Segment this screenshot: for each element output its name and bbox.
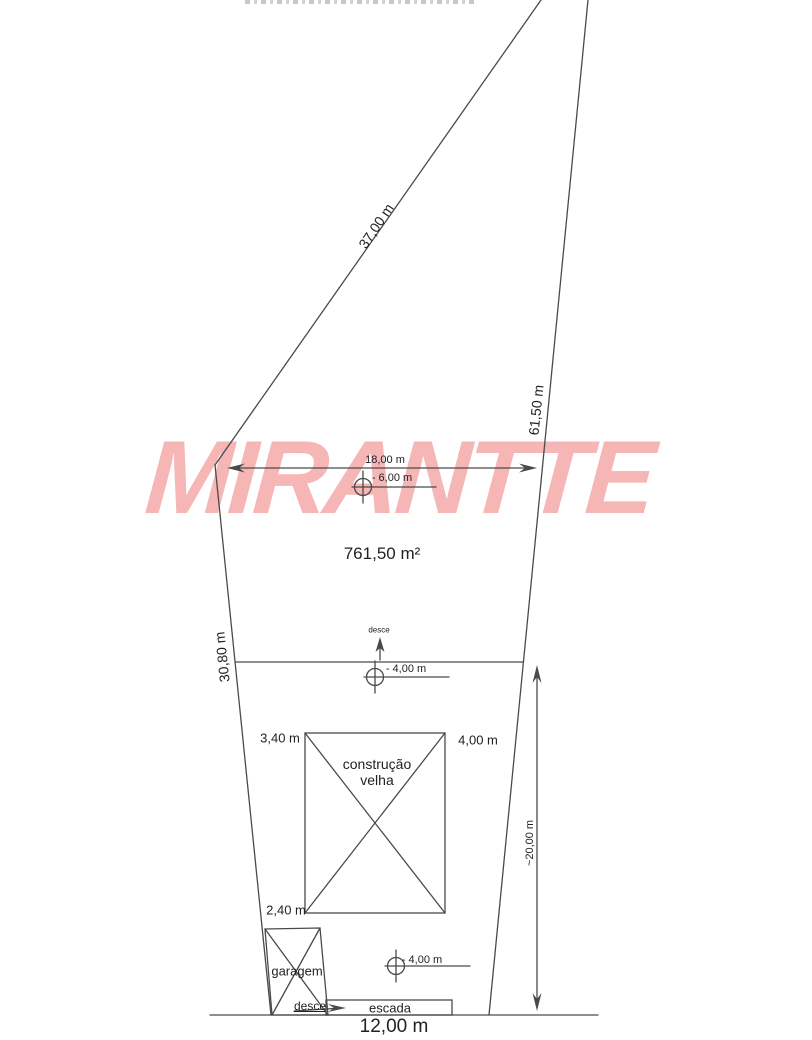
dimension-label-20m: ~20,00 m	[524, 820, 536, 866]
dimension-label-2-40m: 2,40 m	[266, 903, 306, 918]
old-construction-label-line1: construção	[343, 756, 411, 772]
dimension-label-4-00m: 4,00 m	[458, 733, 498, 748]
level-label-minus-4m-mid: - 4,00 m	[386, 663, 426, 675]
boundary-right-line	[489, 0, 588, 1015]
garage-label: garagem	[271, 964, 322, 979]
lot-area-label: 761,50 m²	[344, 544, 421, 564]
dimension-label-18m: 18,00 m	[365, 454, 405, 466]
site-plan-drawing: MIRANTTE	[0, 0, 812, 1040]
dimension-label-3-40m: 3,40 m	[260, 731, 300, 746]
stairs-label: escada	[369, 1001, 411, 1016]
desce-label-upper: desce	[368, 626, 389, 635]
desce-label-lower: desce	[294, 999, 326, 1013]
level-label-minus-6m: - 6,00 m	[372, 472, 412, 484]
dimension-label-12m: 12,00 m	[360, 1016, 429, 1038]
old-construction-label-line2: velha	[343, 772, 411, 788]
level-label-minus-4m-lower: - 4,00 m	[402, 954, 442, 966]
desce-up-arrow	[376, 637, 385, 660]
plan-linework	[0, 0, 812, 1040]
old-construction-label: construção velha	[343, 756, 411, 788]
